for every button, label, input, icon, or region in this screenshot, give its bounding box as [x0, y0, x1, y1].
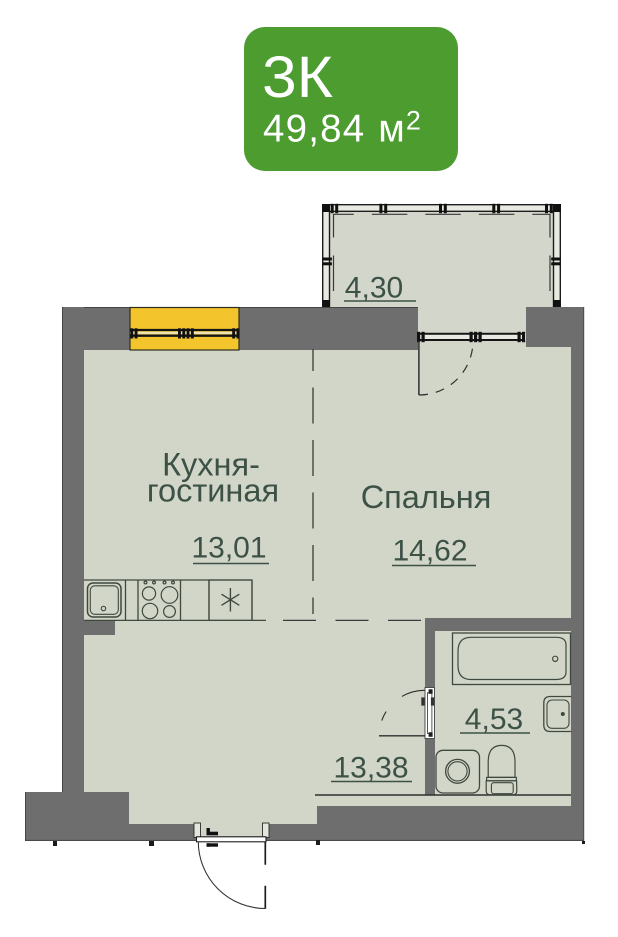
- svg-text:49,84 м2: 49,84 м2: [263, 106, 422, 151]
- svg-text:13,38: 13,38: [333, 752, 408, 785]
- svg-text:4,53: 4,53: [465, 703, 523, 736]
- svg-text:3К: 3К: [262, 45, 333, 110]
- svg-text:Спальня: Спальня: [361, 479, 492, 515]
- svg-text:гостиная: гостиная: [147, 473, 279, 509]
- svg-text:14,62: 14,62: [392, 535, 467, 568]
- svg-text:4,30: 4,30: [345, 272, 403, 305]
- svg-text:13,01: 13,01: [191, 532, 266, 565]
